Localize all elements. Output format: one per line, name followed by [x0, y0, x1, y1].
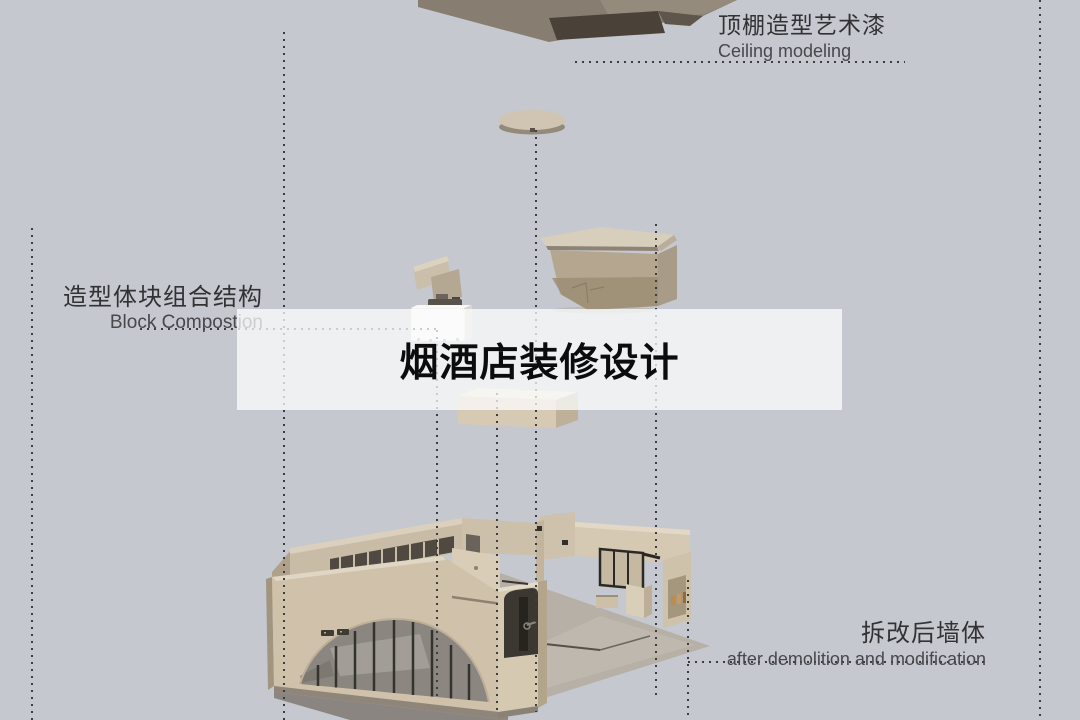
callout-block-en: Block Compostion: [61, 312, 263, 334]
callout-demolition-zh: 拆改后墙体: [700, 613, 986, 648]
leader-line-vertical-5: [535, 130, 537, 712]
callout-block-zh: 造型体块组合结构: [61, 277, 263, 312]
callout-ceiling-zh: 顶棚造型艺术漆: [718, 6, 886, 40]
store-model: [266, 512, 710, 720]
exploded-axonometric-diagram: 顶棚造型艺术漆 Ceiling modeling 造型体块组合结构 Block …: [0, 0, 1080, 720]
title-banner: 烟酒店装修设计: [237, 309, 842, 410]
callout-block: 造型体块组合结构 Block Compostion: [61, 277, 263, 334]
entry-pier: [498, 580, 547, 718]
pendant-disc: [499, 110, 566, 135]
page-title: 烟酒店装修设计: [399, 332, 679, 388]
callout-demolition-en: after demolition and modification: [700, 649, 986, 670]
ceiling-slab: [418, 0, 737, 42]
leader-line-vertical-7: [687, 580, 689, 720]
callout-ceiling-en: Ceiling modeling: [718, 41, 886, 62]
leader-line-vertical-left: [31, 228, 33, 720]
callout-demolition: 拆改后墙体 after demolition and modification: [700, 613, 986, 670]
leader-line-vertical-right: [1039, 0, 1041, 720]
callout-ceiling: 顶棚造型艺术漆 Ceiling modeling: [718, 6, 886, 62]
leader-line-vertical-4: [496, 393, 498, 715]
leader-line-vertical-6: [655, 224, 657, 700]
